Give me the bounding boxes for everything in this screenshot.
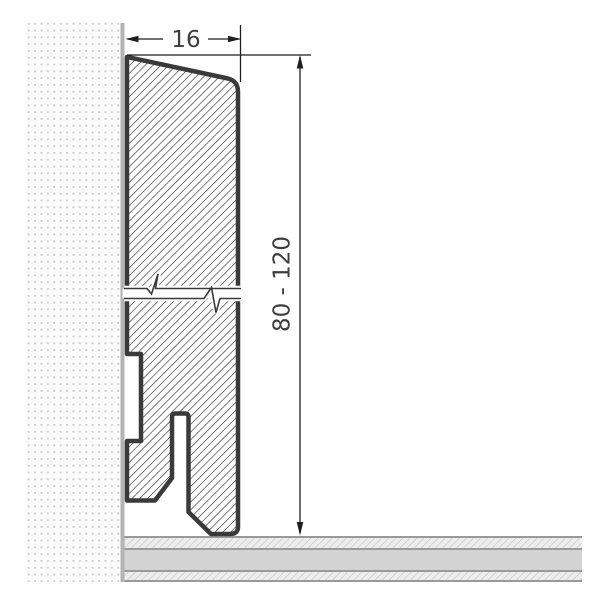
floor-border-mid-upper [125,548,583,550]
floor-layer-solid [125,550,583,570]
floor-layer-screed-bottom [125,572,583,580]
height-arrow-down-icon [297,522,304,536]
wall-dot-texture [26,23,121,582]
wall-section [26,23,125,582]
floor-layer-screed-top [125,538,583,548]
wall-edge-strip [121,23,125,582]
technical-drawing-canvas: 16 80 - 120 [0,0,604,604]
height-arrow-up-icon [297,55,304,69]
floor-border-top [125,536,583,538]
width-arrow-left-icon [126,36,139,43]
floor-border-mid-lower [125,570,583,572]
floor-border-bottom [125,580,583,582]
skirting-profile-diagram: 16 80 - 120 [0,0,604,604]
floor-section [125,536,583,582]
width-dimension-label: 16 [171,27,200,53]
width-arrow-right-icon [228,36,241,43]
height-dimension-label: 80 - 120 [270,236,296,332]
